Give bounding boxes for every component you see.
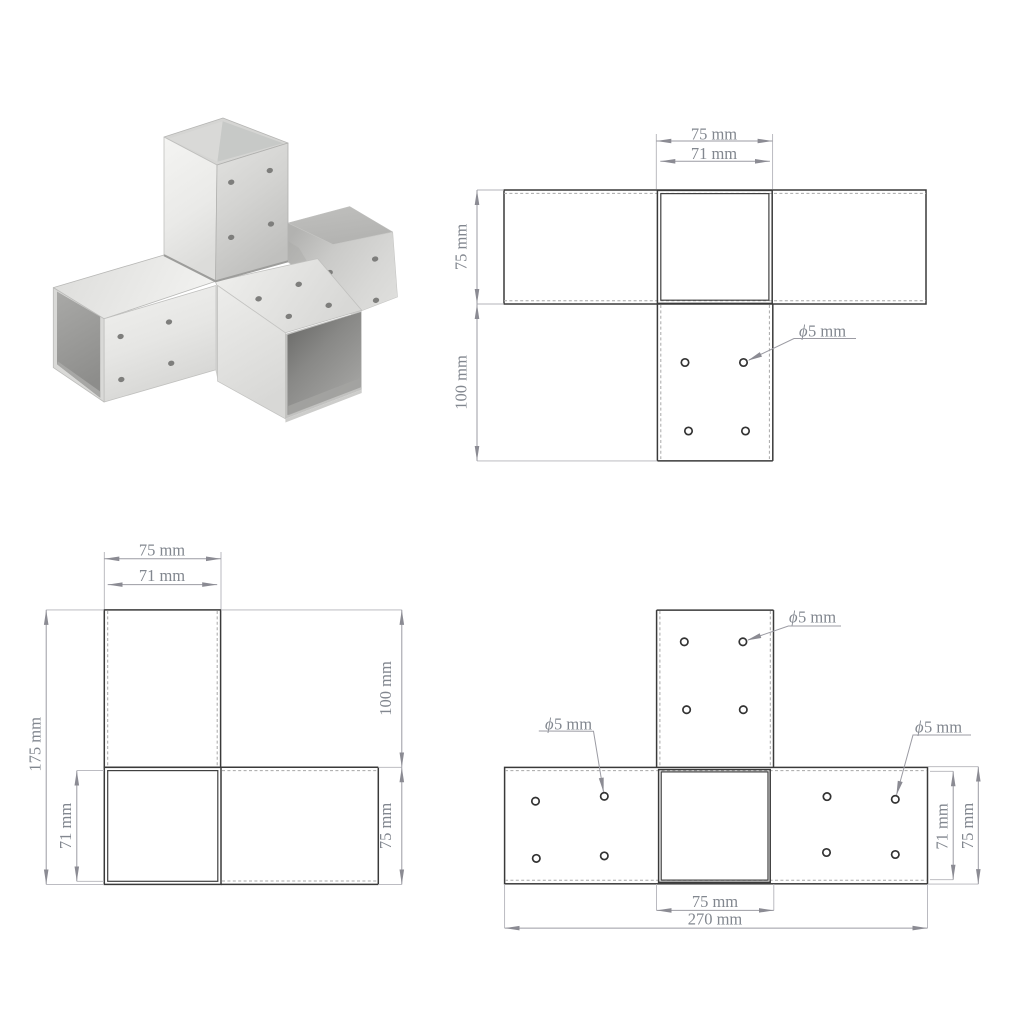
svg-text:75 mm: 75 mm <box>452 224 471 270</box>
svg-text:75 mm: 75 mm <box>691 125 737 144</box>
svg-text:71 mm: 71 mm <box>933 803 952 849</box>
svg-text:100 mm: 100 mm <box>376 661 395 716</box>
svg-text:5 mm: 5 mm <box>924 718 962 737</box>
svg-text:5 mm: 5 mm <box>808 322 846 341</box>
svg-text:71 mm: 71 mm <box>56 803 75 849</box>
svg-text:71 mm: 71 mm <box>691 144 737 163</box>
svg-text:ϕ: ϕ <box>915 718 924 737</box>
svg-text:75 mm: 75 mm <box>139 540 185 559</box>
svg-text:270 mm: 270 mm <box>688 910 743 929</box>
svg-text:100 mm: 100 mm <box>452 355 471 410</box>
svg-text:75 mm: 75 mm <box>376 803 395 849</box>
svg-text:71 mm: 71 mm <box>139 566 185 585</box>
svg-text:175 mm: 175 mm <box>26 717 45 772</box>
svg-text:5 mm: 5 mm <box>798 608 836 627</box>
svg-text:75 mm: 75 mm <box>692 892 738 911</box>
svg-text:ϕ: ϕ <box>789 608 798 627</box>
svg-text:75 mm: 75 mm <box>958 803 977 849</box>
svg-text:ϕ: ϕ <box>799 322 808 341</box>
